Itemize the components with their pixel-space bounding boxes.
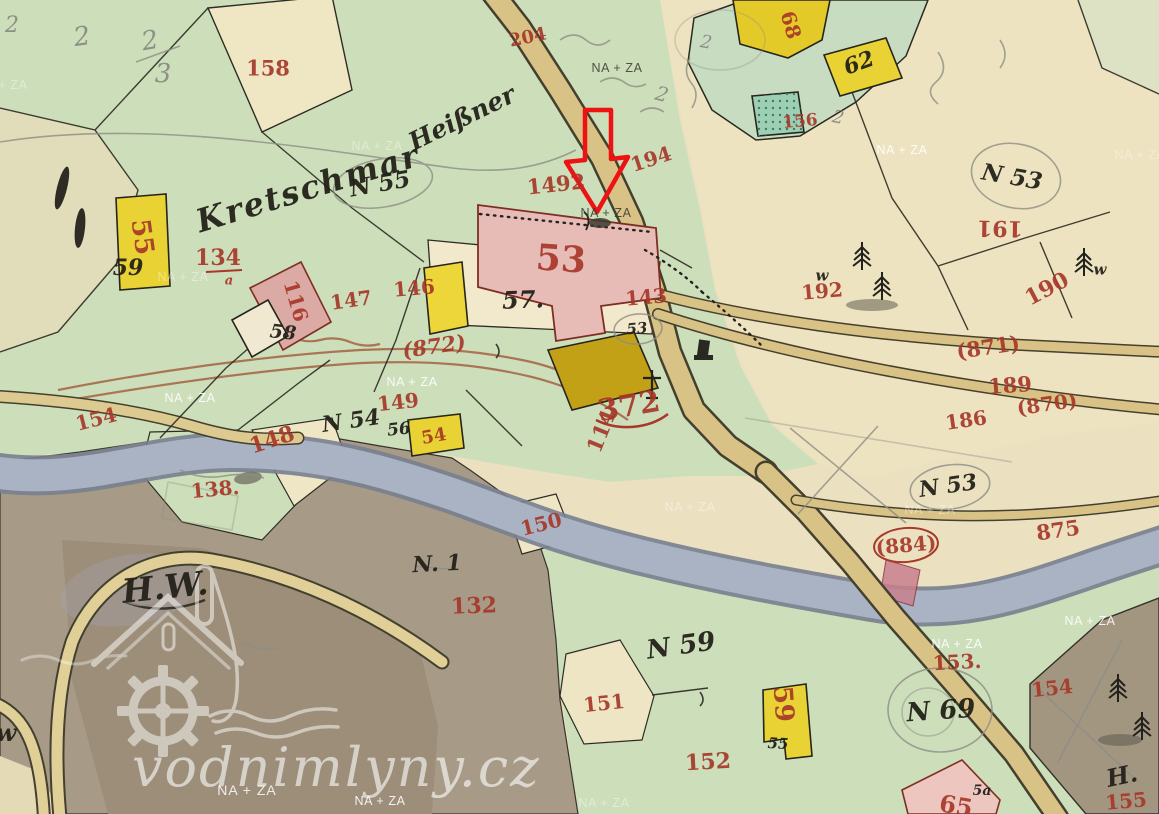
watermark-site-text: vodnimlyny.cz bbox=[132, 736, 541, 799]
monument-icon bbox=[697, 339, 710, 357]
yellow-building-center bbox=[424, 262, 468, 334]
yellow-building-55 bbox=[116, 194, 170, 290]
cadastral-map-image bbox=[0, 0, 1159, 814]
yellow-building-54 bbox=[408, 414, 464, 456]
watermark-credit-text: NA + ZA bbox=[217, 782, 277, 798]
mill-site-ink-blob bbox=[589, 218, 611, 228]
cadastral-map-viewport: 158134a11655147146531492194143(872)37211… bbox=[0, 0, 1159, 814]
